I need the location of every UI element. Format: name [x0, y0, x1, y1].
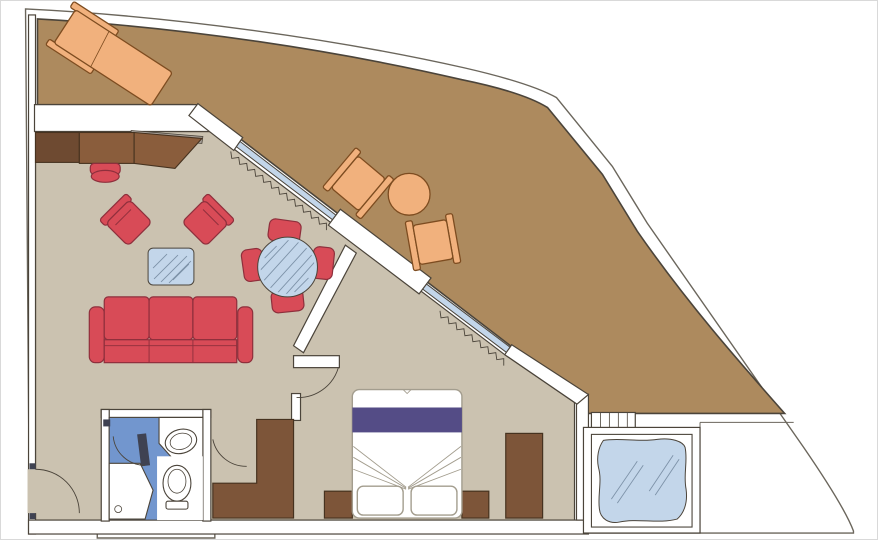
north-wall — [35, 105, 211, 132]
bathroom-north-wall — [101, 409, 211, 417]
bed-runner — [352, 407, 462, 432]
left-wall — [29, 15, 36, 534]
entry-jamb-top — [30, 463, 36, 469]
balcony-table — [388, 173, 430, 215]
divider-wall-stub — [294, 356, 340, 368]
pillow-right — [411, 486, 457, 515]
wardrobe — [506, 433, 543, 518]
sofa-arm-right — [238, 307, 253, 363]
bathroom-east-wall — [203, 409, 211, 521]
whirlpool-water — [598, 439, 687, 523]
entry-opening — [28, 469, 37, 513]
pillow-left — [357, 486, 403, 515]
sideboard-mid — [79, 133, 134, 164]
entry-jamb-bottom — [30, 513, 36, 519]
south-wall — [29, 520, 589, 534]
nightstand-left — [324, 491, 352, 518]
coffee-table — [148, 248, 194, 285]
sofa-arm-left — [89, 307, 104, 363]
double-bed — [352, 390, 462, 519]
dining-table — [258, 237, 318, 297]
bathroom — [103, 417, 203, 520]
sofa — [89, 297, 252, 363]
toilet — [163, 465, 191, 509]
floor-plan-svg: Cruise ship suite floor plan with wrap-a… — [1, 1, 877, 539]
floor-plan-canvas: Cruise ship suite floor plan with wrap-a… — [0, 0, 878, 540]
sideboard-cabinet — [36, 133, 80, 163]
nightstand-right — [462, 491, 489, 518]
bathroom-door-hinge — [103, 419, 110, 426]
stool — [90, 163, 120, 182]
